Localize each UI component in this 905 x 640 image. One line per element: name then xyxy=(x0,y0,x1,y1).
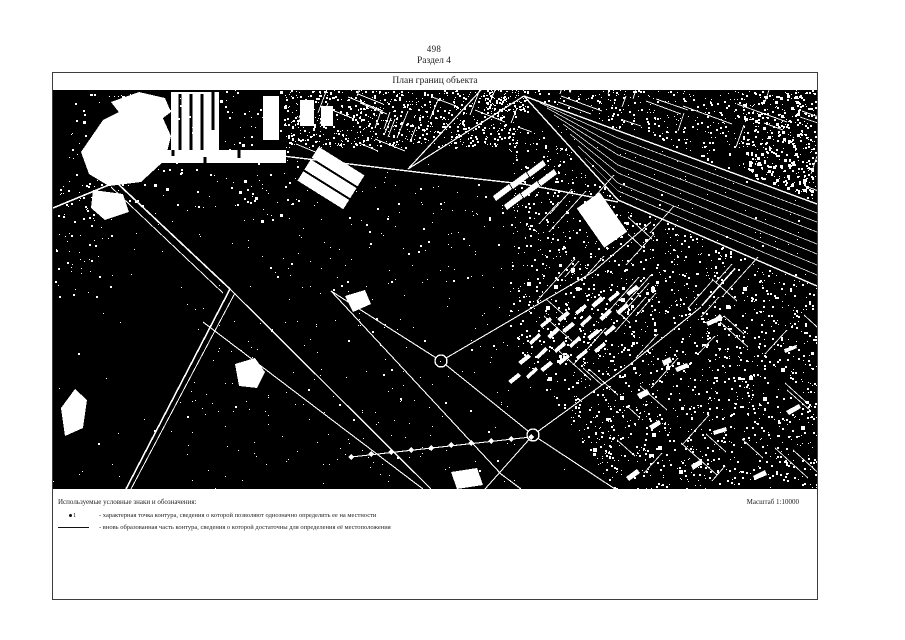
page-number: 498 xyxy=(52,44,816,54)
map-junction-circle-2 xyxy=(527,429,539,441)
legend-item-characteristic-point: 1 - характерная точка контура, сведения … xyxy=(58,511,488,520)
scale-label: Масштаб 1:10000 xyxy=(747,497,799,507)
plan-title: План границ объекта xyxy=(53,73,817,90)
legend-item-contour-line: - вновь образованная часть контура, свед… xyxy=(58,523,488,532)
legend-item-text: - характерная точка контура, сведения о … xyxy=(99,511,399,520)
satellite-map-image xyxy=(53,90,817,489)
boundary-plan-map xyxy=(53,90,817,489)
characteristic-point-icon: 1 xyxy=(69,511,76,520)
contour-line-icon xyxy=(58,527,89,528)
legend-block: Используемые условные знаки и обозначени… xyxy=(53,489,817,597)
legend-heading: Используемые условные знаки и обозначени… xyxy=(58,497,197,507)
section-heading: Раздел 4 xyxy=(52,56,816,66)
plan-sheet-frame: План границ объекта xyxy=(52,72,818,600)
legend-item-text: - вновь образованная часть контура, свед… xyxy=(99,523,399,532)
